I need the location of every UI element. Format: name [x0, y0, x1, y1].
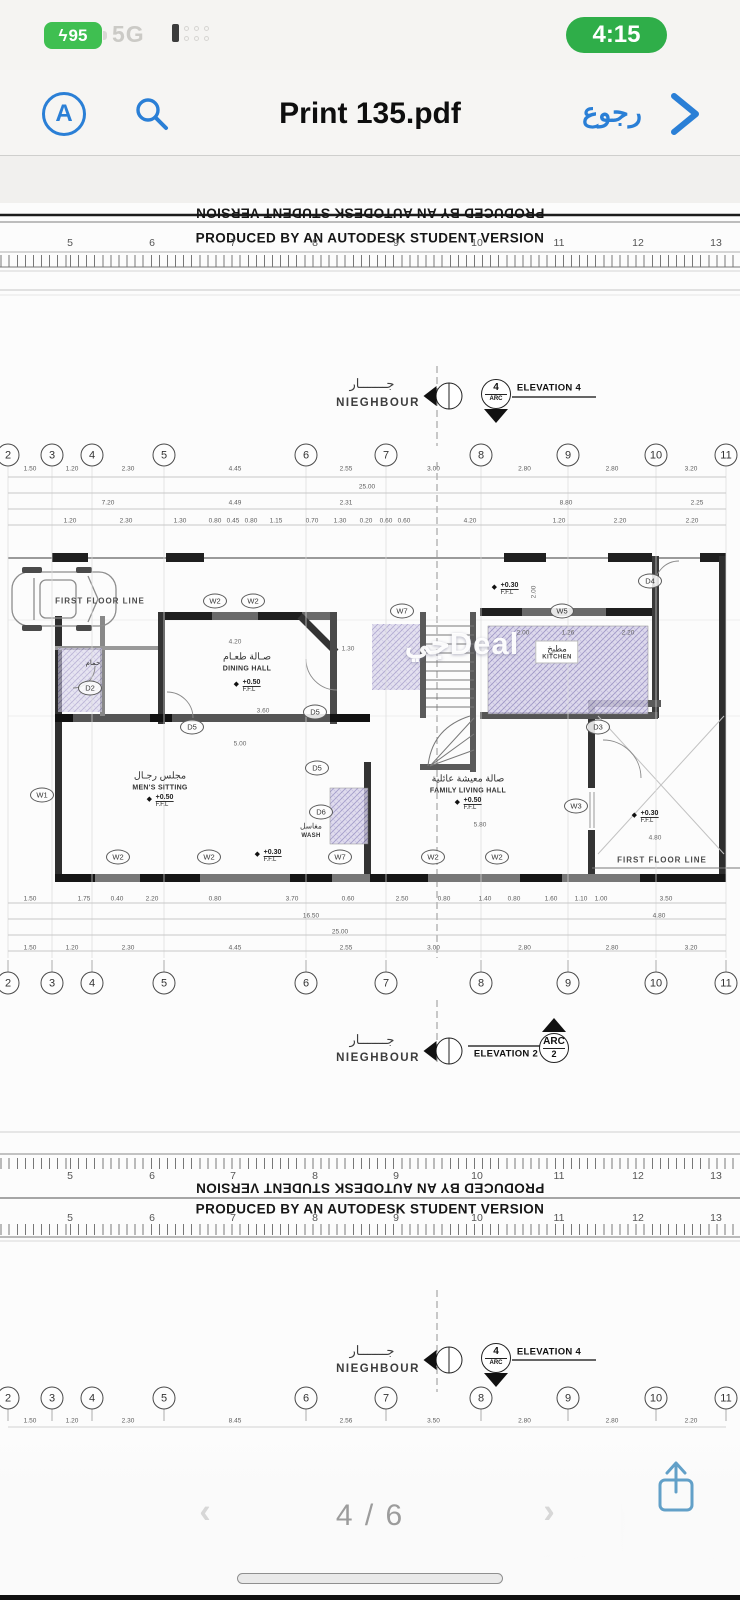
- battery-percent: 95: [69, 26, 88, 46]
- ruler-ticks-top: [0, 255, 740, 267]
- battery-icon: ϟ95: [44, 22, 102, 49]
- section-marker-icon-2: [436, 1038, 463, 1065]
- neighbour-label-en-2: NIEGHBOUR: [336, 1052, 420, 1064]
- phone-screen: ϟ95 5G 4:15 A Print 135.pdf رجوع: [0, 0, 740, 1600]
- neighbour-label-ar: جـــــــار: [350, 376, 395, 392]
- first-floor-line-left: FIRST FLOOR LINE: [55, 597, 145, 606]
- room-mens-ar: مجلس رجـال: [134, 771, 186, 782]
- clock-badge: 4:15: [566, 17, 667, 53]
- back-chevron-icon[interactable]: [666, 90, 706, 138]
- ruler-ticks-sheet2-top: [0, 1224, 740, 1235]
- annotate-tool-button[interactable]: A: [42, 92, 86, 136]
- share-button[interactable]: [652, 1458, 700, 1518]
- elevation-badge-top: 4 ARC: [481, 379, 511, 409]
- elevation-triangle-icon: [484, 409, 508, 423]
- elevation-label-top: ELEVATION 4: [517, 383, 581, 394]
- autodesk-banner: PRODUCED BY AN AUTODESK STUDENT VERSION: [196, 231, 545, 246]
- charging-bolt-icon: ϟ: [59, 26, 68, 46]
- share-icon: [652, 1458, 700, 1518]
- network-type-label: 5G: [112, 21, 145, 48]
- room-kitchen-label: مطبخ KITCHEN: [535, 641, 578, 664]
- autodesk-banner-mirrored: PRODUCED BY AN AUTODESK STUDENT VERSION: [196, 206, 545, 221]
- deal-watermark: جيDeal: [405, 626, 520, 662]
- status-bar: ϟ95 5G 4:15: [0, 0, 740, 70]
- pdf-margin-gap: [0, 156, 740, 203]
- section-arrow-icon-2: [424, 1041, 437, 1061]
- neighbour-label-ar-3: جـــــــار: [350, 1343, 395, 1359]
- section-marker-icon: [436, 383, 463, 410]
- scroll-indicator[interactable]: [237, 1573, 503, 1584]
- room-dining-ar: صـالة طعـام: [223, 652, 271, 663]
- first-floor-line-right: FIRST FLOOR LINE: [617, 856, 707, 865]
- circle-a-icon: A: [55, 100, 72, 128]
- elevation-badge-bottom: 4 ARC: [481, 1343, 511, 1373]
- elevation-triangle-icon-2: [542, 1018, 566, 1032]
- section-marker-icon-3: [436, 1347, 463, 1374]
- page-indicator: 4 / 6: [336, 1499, 404, 1533]
- room-bath-ar: حمام: [86, 659, 101, 667]
- prev-page-chevron[interactable]: ‹: [199, 1493, 210, 1532]
- elevation-triangle-icon-3: [484, 1373, 508, 1387]
- elevation-label-middle: ELEVATION 2: [474, 1049, 538, 1060]
- battery-tip: [103, 31, 107, 40]
- back-button[interactable]: رجوع: [582, 98, 642, 129]
- elevation-badge-middle: ARC 2: [539, 1033, 569, 1063]
- signal-bar: [172, 24, 179, 42]
- pdf-canvas[interactable]: [0, 156, 740, 1600]
- neighbour-label-en-3: NIEGHBOUR: [336, 1363, 420, 1375]
- ruler-ticks-sheet1-bottom: [0, 1158, 740, 1169]
- neighbour-label-en: NIEGHBOUR: [336, 397, 420, 409]
- search-button[interactable]: [132, 94, 172, 134]
- room-dining-en: DINING HALL: [223, 666, 271, 673]
- document-title: Print 135.pdf: [279, 97, 461, 131]
- elevation-label-bottom: ELEVATION 4: [517, 1347, 581, 1358]
- search-icon: [132, 94, 172, 134]
- autodesk-banner-mirrored-2: PRODUCED BY AN AUTODESK STUDENT VERSION: [196, 1181, 545, 1196]
- room-wash-en: WASH: [301, 833, 320, 839]
- neighbour-label-ar-2: جـــــــار: [350, 1032, 395, 1048]
- room-family-en: FAMILY LIVING HALL: [430, 788, 506, 795]
- section-arrow-icon: [424, 386, 437, 406]
- autodesk-banner-2: PRODUCED BY AN AUTODESK STUDENT VERSION: [196, 1202, 545, 1217]
- room-wash-ar: مغاسل: [300, 822, 322, 831]
- section-arrow-icon-3: [424, 1350, 437, 1370]
- screen-bottom-edge: [0, 1595, 740, 1600]
- signal-bars-icon: [172, 24, 222, 48]
- room-mens-en: MEN'S SITTING: [132, 785, 187, 792]
- room-family-ar: صالة معيشة عائلية: [432, 774, 505, 785]
- next-page-chevron[interactable]: ›: [543, 1493, 554, 1532]
